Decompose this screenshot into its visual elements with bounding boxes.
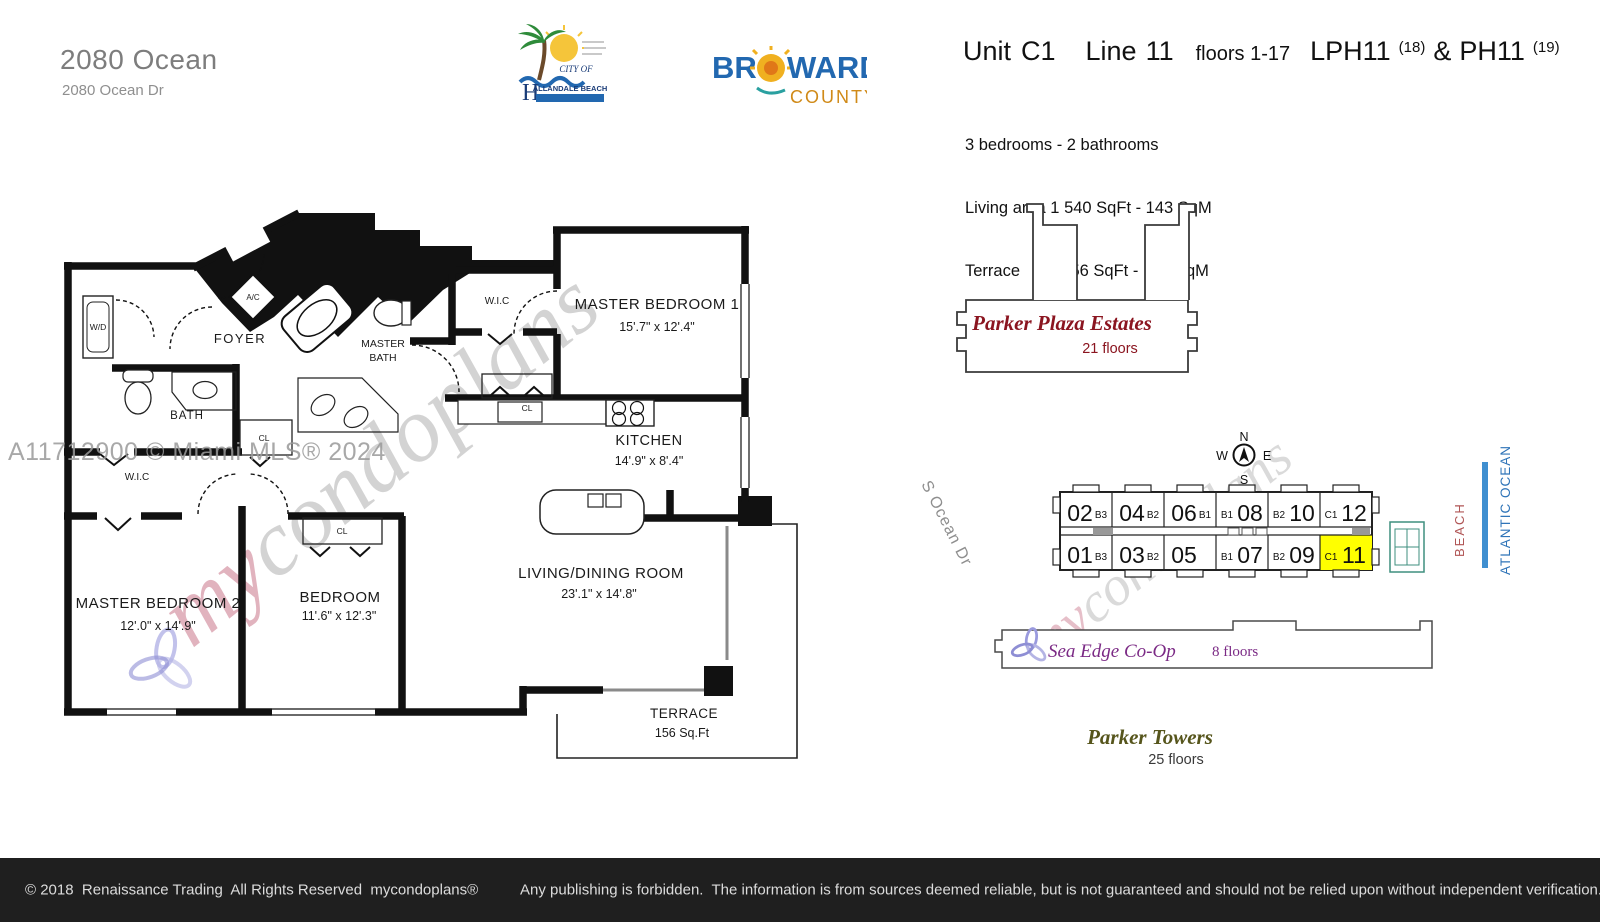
room-terrace: TERRACE	[650, 706, 718, 721]
dims-master-bedroom-2: 12'.0" x 14'.9"	[120, 619, 196, 633]
condo-floorplan-page: 2080 Ocean 2080 Ocean Dr CITY OF H ALLAN…	[0, 0, 1600, 922]
ph-label: PH11	[1459, 36, 1525, 67]
unit-number: 02	[1067, 500, 1093, 526]
logo-hallandale-name: ALLANDALE BEACH	[533, 84, 608, 93]
lph-floor: (18)	[1399, 39, 1426, 56]
building-address: 2080 Ocean Dr	[62, 82, 164, 99]
ocean-label: ATLANTIC OCEAN	[1498, 445, 1513, 575]
parker-plaza-floors: 21 floors	[1082, 341, 1138, 357]
unit-code: B1	[1199, 510, 1212, 521]
hallandale-beach-logo: CITY OF H ALLANDALE BEACH	[492, 20, 612, 110]
gray-sliders	[603, 526, 727, 690]
room-master-bedroom-1: MASTER BEDROOM 1	[575, 296, 740, 313]
unit-number: 03	[1119, 542, 1145, 568]
sea-edge-name: Sea Edge Co-Op	[1048, 641, 1176, 662]
sink	[307, 390, 339, 420]
unit-number: 12	[1341, 500, 1367, 526]
unit-code: C1	[1325, 552, 1338, 563]
room-master-bedroom-2: MASTER BEDROOM 2	[76, 595, 241, 612]
room-wic-2: W.I.C	[125, 472, 149, 483]
footer-disclaimer: Any publishing is forbidden. The informa…	[520, 882, 1600, 899]
mls-watermark: A11712900 © Miami MLS® 2024	[8, 438, 386, 467]
corridor-core	[1352, 528, 1370, 535]
unit-code: C1	[1325, 510, 1338, 521]
line-value: 11	[1146, 36, 1174, 67]
lph-label: LPH11	[1310, 36, 1391, 67]
unit-code: B1	[1221, 552, 1234, 563]
unit-code: B2	[1273, 552, 1286, 563]
toilet-bowl	[125, 382, 151, 414]
unit-code: B3	[1095, 510, 1108, 521]
building-strip: 02 B3 04 B2 06 B1 B1 08 B2 10 C1 12 01 B…	[1053, 485, 1379, 577]
unit-number: 01	[1067, 542, 1093, 568]
unit-label: Unit	[963, 36, 1011, 67]
site-map: mycondoplans Parker Plaza Estates 21 flo…	[880, 190, 1545, 780]
shoreline-bar	[1482, 462, 1488, 568]
tennis-court-icon	[1390, 522, 1424, 572]
corridor-core	[1093, 528, 1113, 535]
building-name: 2080 Ocean	[60, 44, 218, 76]
ph-floor: (19)	[1533, 39, 1560, 56]
kitchen-counter	[458, 400, 654, 426]
unit-header: Unit C1 Line 11 floors 1-17 LPH11 (18) &…	[963, 36, 1560, 67]
unit-code: B2	[1147, 510, 1160, 521]
ac-label: A/C	[246, 293, 260, 302]
parker-towers-floors: 25 floors	[1148, 752, 1204, 768]
unit-code: B1	[1221, 510, 1234, 521]
unit-value: C1	[1021, 36, 1056, 67]
dims-bedroom: 11'.6" x 12'.3"	[302, 609, 377, 623]
logo-ward: WARD	[787, 50, 867, 85]
room-cl-kitchen: CL	[522, 403, 533, 413]
room-bath: BATH	[170, 410, 204, 422]
logo-city-of: CITY OF	[559, 64, 593, 74]
unit-code: B3	[1095, 552, 1108, 563]
unit-number: 10	[1289, 500, 1315, 526]
room-foyer: FOYER	[214, 331, 266, 346]
dims-living-dining: 23'.1" x 14'.8"	[561, 587, 637, 601]
floors-range: floors 1-17	[1196, 43, 1291, 66]
unit-code: B2	[1147, 552, 1160, 563]
room-master-bath-2: BATH	[369, 352, 396, 364]
broward-county-logo: BR WARD COUNTY	[712, 46, 867, 111]
line-label: Line	[1086, 36, 1137, 67]
unit-number: 07	[1237, 542, 1263, 568]
unit-number: 09	[1289, 542, 1315, 568]
kitchen-island	[540, 490, 644, 534]
room-living-dining: LIVING/DINING ROOM	[518, 565, 684, 582]
room-wic-top: W.I.C	[485, 296, 509, 307]
dims-kitchen: 14'.9" x 8'.4"	[615, 454, 684, 468]
floorplan: mycondoplans A/C	[55, 198, 815, 773]
vanity	[172, 372, 236, 410]
unit-number: 04	[1119, 500, 1145, 526]
room-cl-bedroom: CL	[337, 526, 348, 536]
beach-label: BEACH	[1452, 502, 1467, 557]
toilet-tank	[402, 301, 411, 325]
area-terrace: 156 Sq.Ft	[655, 726, 710, 740]
footer-copyright: © 2018 Renaissance Trading All Rights Re…	[25, 882, 478, 899]
elevators	[1228, 528, 1267, 535]
room-bedroom: BEDROOM	[299, 589, 380, 606]
dims-master-bedroom-1: 15'.7" x 12'.4"	[619, 320, 695, 334]
unit-number: 08	[1237, 500, 1263, 526]
bath-fixtures	[123, 370, 236, 414]
wall-block	[704, 666, 733, 696]
parker-plaza-name: Parker Plaza Estates	[971, 311, 1152, 335]
sun-icon	[546, 25, 606, 62]
parker-towers-name: Parker Towers	[1086, 725, 1213, 749]
spec-bed-bath: 3 bedrooms - 2 bathrooms	[965, 135, 1212, 156]
sink	[193, 382, 217, 399]
compass-n: N	[1239, 430, 1248, 444]
terrace-outline	[557, 524, 797, 758]
unit-number: 11	[1342, 542, 1366, 568]
unit-code: B2	[1273, 510, 1286, 521]
ampersand: &	[1433, 36, 1451, 67]
sea-edge-floors: 8 floors	[1212, 644, 1258, 660]
footer-bar: © 2018 Renaissance Trading All Rights Re…	[0, 858, 1600, 922]
compass-e: E	[1263, 449, 1271, 463]
compass-w: W	[1216, 449, 1228, 463]
unit-number: 05	[1171, 542, 1197, 568]
street-label: S Ocean Dr	[917, 478, 975, 569]
room-wd: W/D	[90, 322, 107, 332]
logo-county: COUNTY	[790, 87, 867, 107]
room-master-bath-1: MASTER	[361, 338, 405, 350]
parker-plaza-building: Parker Plaza Estates 21 floors	[957, 204, 1197, 372]
room-kitchen: KITCHEN	[615, 433, 682, 449]
toilet-tank	[123, 370, 153, 382]
unit-number: 06	[1171, 500, 1197, 526]
